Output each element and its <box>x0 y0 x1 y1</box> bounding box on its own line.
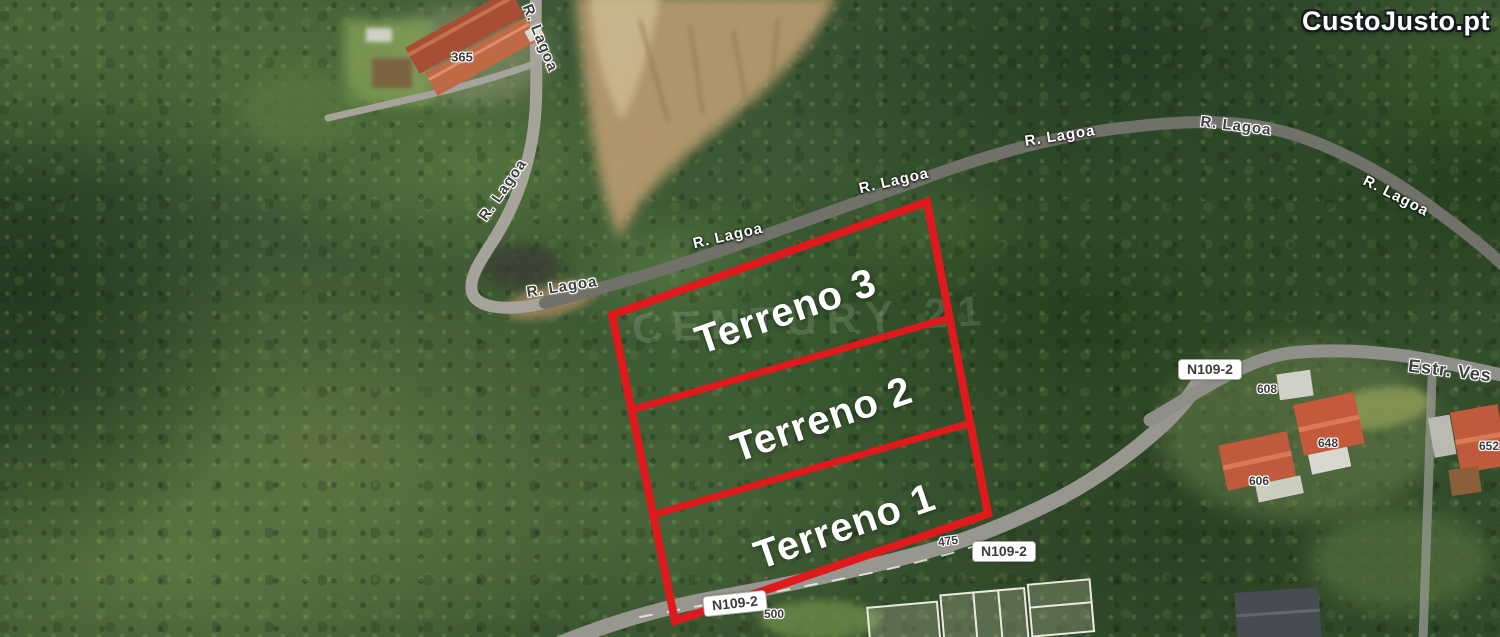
house-number: 608 <box>1257 382 1277 396</box>
house-number: 365 <box>451 50 473 65</box>
satellite-map: CENTURY 21 Terreno 3 Terreno 2 Terreno 1… <box>0 0 1500 637</box>
road-shield-n109: N109-2 <box>1178 359 1242 380</box>
house-number: 500 <box>764 607 784 621</box>
house-number: 648 <box>1318 436 1338 450</box>
custojusto-watermark: CustoJusto.pt <box>1302 6 1490 37</box>
house-number: 475 <box>937 533 959 550</box>
house-number: 652 <box>1479 439 1499 453</box>
house-number: 606 <box>1249 474 1269 488</box>
road-shield-n109: N109-2 <box>972 541 1036 562</box>
